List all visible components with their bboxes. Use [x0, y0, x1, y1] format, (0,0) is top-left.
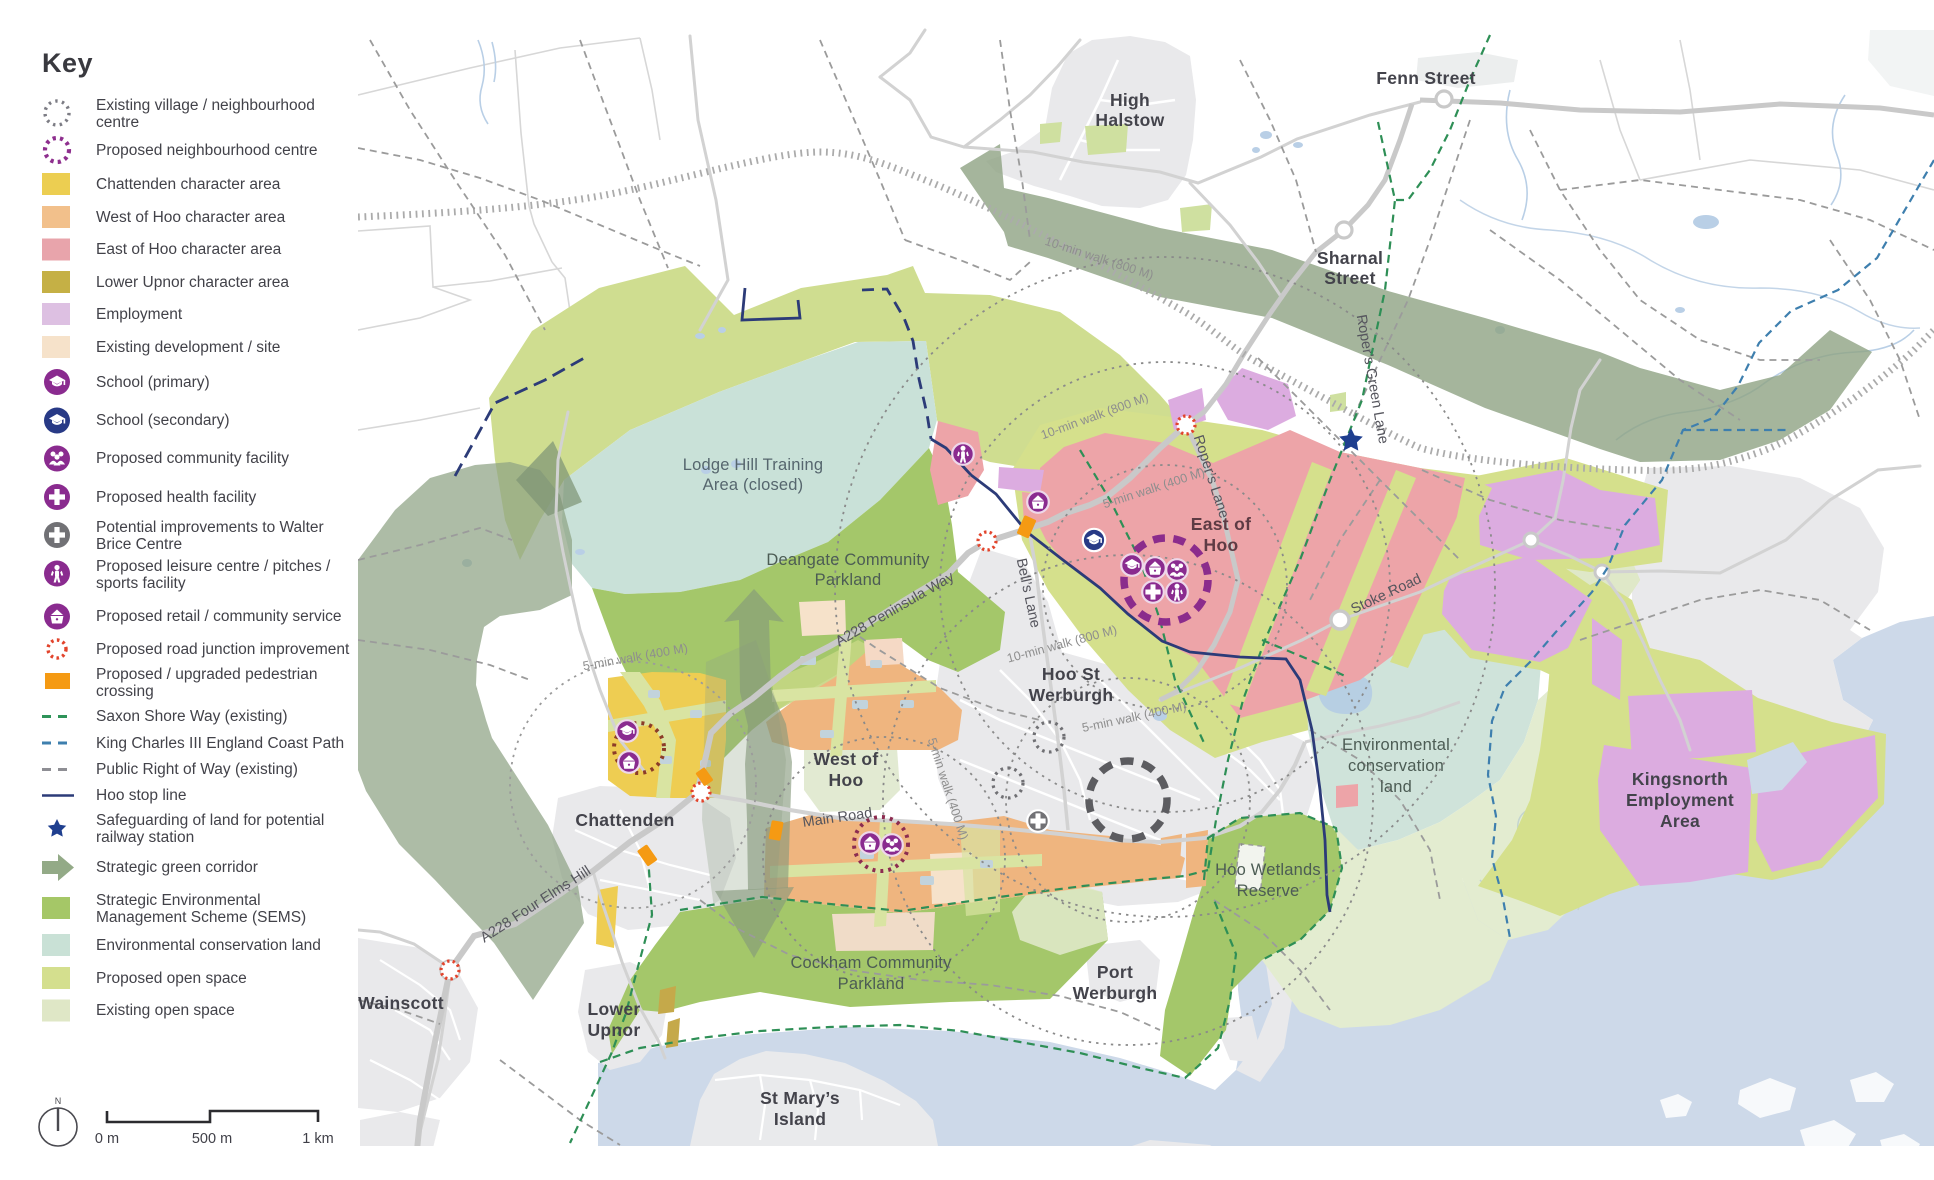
svg-text:Upnor: Upnor — [587, 1020, 640, 1040]
svg-text:Hoo St: Hoo St — [1042, 664, 1100, 684]
svg-text:land: land — [1380, 778, 1412, 796]
svg-text:St Mary’s: St Mary’s — [760, 1088, 840, 1108]
svg-text:Wainscott: Wainscott — [358, 993, 444, 1013]
svg-text:Employment: Employment — [1626, 790, 1734, 810]
svg-text:Sharnal: Sharnal — [1317, 248, 1383, 268]
svg-text:N: N — [55, 1096, 62, 1106]
svg-text:500 m: 500 m — [192, 1131, 232, 1147]
svg-text:High: High — [1110, 90, 1150, 110]
svg-text:0 m: 0 m — [95, 1131, 119, 1147]
svg-text:Chattenden: Chattenden — [575, 810, 674, 830]
svg-text:Port: Port — [1097, 962, 1133, 982]
svg-text:Hoo: Hoo — [1204, 535, 1239, 555]
svg-text:Fenn Street: Fenn Street — [1376, 68, 1476, 88]
svg-text:Hoo: Hoo — [829, 770, 864, 790]
svg-text:Area (closed): Area (closed) — [703, 476, 804, 494]
svg-text:Cockham Community: Cockham Community — [790, 954, 952, 972]
svg-text:Lodge Hill Training: Lodge Hill Training — [683, 456, 823, 474]
svg-text:Deangate Community: Deangate Community — [766, 551, 930, 569]
svg-text:Kingsnorth: Kingsnorth — [1632, 769, 1728, 789]
svg-text:Environmental: Environmental — [1342, 736, 1450, 754]
svg-text:Lower: Lower — [587, 999, 640, 1019]
svg-text:Hoo Wetlands: Hoo Wetlands — [1215, 861, 1321, 879]
svg-text:West of: West of — [814, 749, 879, 769]
svg-text:Parkland: Parkland — [838, 975, 905, 993]
svg-text:Area: Area — [1660, 811, 1700, 831]
svg-text:Halstow: Halstow — [1095, 110, 1164, 130]
svg-text:Parkland: Parkland — [815, 571, 882, 589]
svg-text:Reserve: Reserve — [1237, 882, 1300, 900]
svg-text:1 km: 1 km — [302, 1131, 333, 1147]
svg-text:Werburgh: Werburgh — [1073, 983, 1158, 1003]
svg-text:Street: Street — [1324, 268, 1375, 288]
svg-text:conservation: conservation — [1348, 757, 1444, 775]
svg-text:Werburgh: Werburgh — [1029, 685, 1114, 705]
svg-text:Island: Island — [774, 1109, 826, 1129]
